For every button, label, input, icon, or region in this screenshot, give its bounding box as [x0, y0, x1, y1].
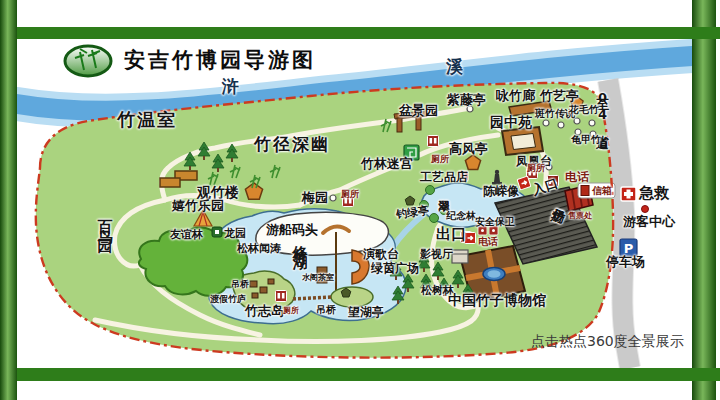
- poi-plum-garden[interactable]: 梅园: [302, 191, 328, 204]
- poi-holiday-bamboo-lodge[interactable]: 渡假竹庐: [210, 295, 246, 304]
- panorama-note: 点击热点360度全景展示: [531, 334, 684, 348]
- poi-bamboo-art-pavilion[interactable]: 竹艺亭: [540, 89, 579, 102]
- poi-deep-bamboo-path[interactable]: 竹径深幽: [254, 136, 330, 153]
- label-telephone[interactable]: 电话: [478, 237, 498, 247]
- label-visitor-center[interactable]: 游客中心: [623, 215, 675, 228]
- poi-dragon-garden[interactable]: 龙园: [224, 228, 246, 239]
- poi-cinema-hall[interactable]: 影视厅: [420, 249, 453, 260]
- label-parking-lot[interactable]: 停车场: [606, 255, 645, 268]
- label-telephone[interactable]: 电话: [565, 171, 589, 183]
- label-suspension-bridge-south[interactable]: 吊桥: [316, 305, 336, 315]
- left-frame-bar: [0, 0, 17, 400]
- river-label-hu: 浒: [222, 78, 239, 95]
- poi-huamao-bamboo[interactable]: 花毛竹: [569, 105, 599, 115]
- label-toilet[interactable]: 厕所: [283, 307, 299, 315]
- label-suspension-bridge-west[interactable]: 吊桥: [231, 280, 249, 289]
- first-aid-icon[interactable]: [621, 187, 636, 201]
- poi-tortoise-shell-bamboo[interactable]: 龟甲竹: [571, 135, 601, 145]
- right-frame-bar: [692, 0, 716, 400]
- poi-wisteria-pavilion[interactable]: 紫藤亭: [447, 93, 486, 106]
- label-security[interactable]: 安全保卫: [475, 217, 515, 227]
- poi-gaofeng-pavilion[interactable]: 高风亭: [449, 142, 488, 155]
- poi-chenrong-statue[interactable]: 陈嵘像: [483, 185, 519, 197]
- poi-bamboo-viewing-tower[interactable]: 观竹楼: [197, 185, 239, 199]
- poi-memorial-forest[interactable]: 纪念林: [446, 211, 476, 221]
- poi-song-stage[interactable]: 演歌台: [363, 248, 399, 260]
- park-logo: [65, 46, 111, 76]
- poi-pine-waves[interactable]: 松林闻涛: [237, 243, 281, 254]
- label-ticket-office[interactable]: 售票处: [568, 212, 592, 220]
- poi-boat-dock[interactable]: 游船码头: [266, 223, 318, 236]
- poi-bamboo-island[interactable]: 竹志岛: [245, 304, 284, 317]
- poi-friendship-forest[interactable]: 友谊林: [170, 229, 203, 240]
- dragon-garden-icon[interactable]: [212, 227, 222, 237]
- toilet-icon[interactable]: [428, 136, 439, 147]
- visitor-center-icon[interactable]: [642, 206, 649, 213]
- poi-bamboo-ode-gallery[interactable]: 咏竹廊: [496, 89, 535, 102]
- bottom-frame-bar: [17, 368, 720, 381]
- label-first-aid[interactable]: 急救: [639, 186, 669, 201]
- label-mailbox[interactable]: 信箱: [592, 186, 612, 196]
- map-title: 安吉竹博园导游图: [124, 46, 316, 74]
- poi-bamboo-playground[interactable]: 嬉竹乐园: [172, 199, 224, 212]
- label-toilet[interactable]: 厕所: [527, 164, 545, 173]
- top-frame-bar: [17, 27, 720, 39]
- exit-arrow-icon[interactable]: [465, 233, 476, 244]
- poi-bamboo-museum[interactable]: 中国竹子博物馆: [448, 293, 546, 307]
- poi-bamboo-maze[interactable]: 竹林迷宫: [361, 157, 413, 170]
- poi-lakeview-pavilion[interactable]: 望湖亭: [348, 306, 384, 318]
- poi-central-courtyard[interactable]: 园中苑: [490, 115, 532, 129]
- river-label-xi: 溪: [446, 58, 463, 75]
- label-exit[interactable]: 出口: [436, 227, 466, 242]
- toilet-icon[interactable]: [276, 291, 287, 302]
- poi-craft-shop[interactable]: 工艺品店: [420, 171, 468, 183]
- label-toilet[interactable]: 厕所: [431, 155, 449, 164]
- label-toilet[interactable]: 厕所: [341, 190, 359, 199]
- poi-lawn-square[interactable]: 绿茵广场: [371, 262, 419, 274]
- lakeview-island: [331, 287, 373, 307]
- poi-tea-house[interactable]: 水阁茶室: [302, 274, 334, 282]
- poi-bamboo-greenhouse[interactable]: 竹温室: [117, 111, 177, 129]
- poi-bird-garden[interactable]: 百鸟园: [97, 208, 112, 235]
- poi-bonsai-garden[interactable]: 盆景园: [399, 104, 438, 117]
- tour-map-page: P: [0, 0, 720, 400]
- cinema-building: [452, 250, 468, 263]
- courtyard-building: [502, 127, 543, 155]
